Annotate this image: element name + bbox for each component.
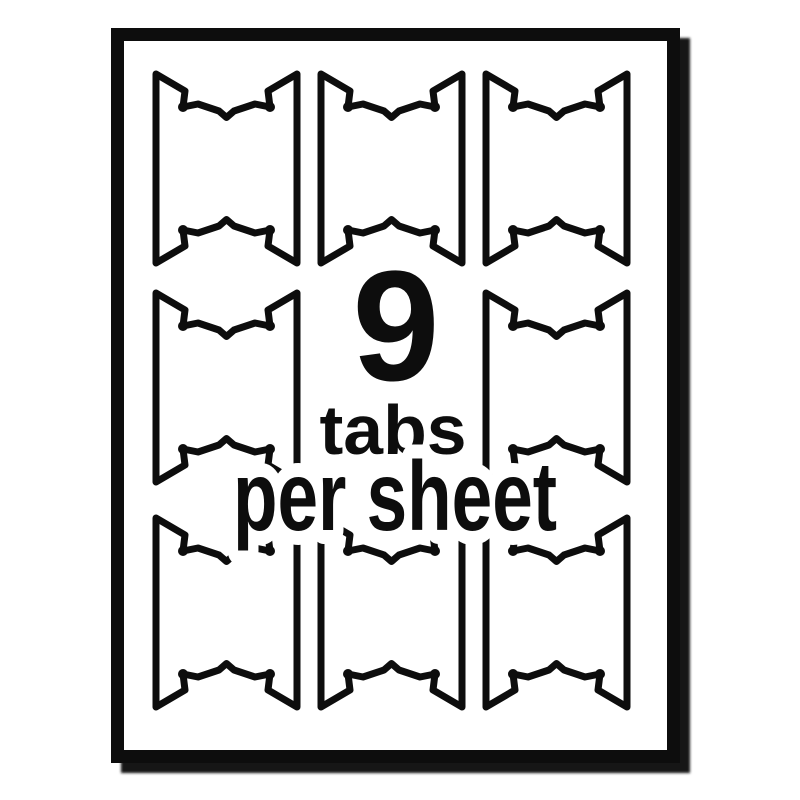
tabs-count-text: 9	[352, 239, 439, 414]
tab-sheet-graphic: 9 tabs per sheet	[0, 0, 800, 800]
product-illustration: 9 tabs per sheet	[0, 0, 800, 800]
per-sheet-text: per sheet	[233, 441, 557, 551]
